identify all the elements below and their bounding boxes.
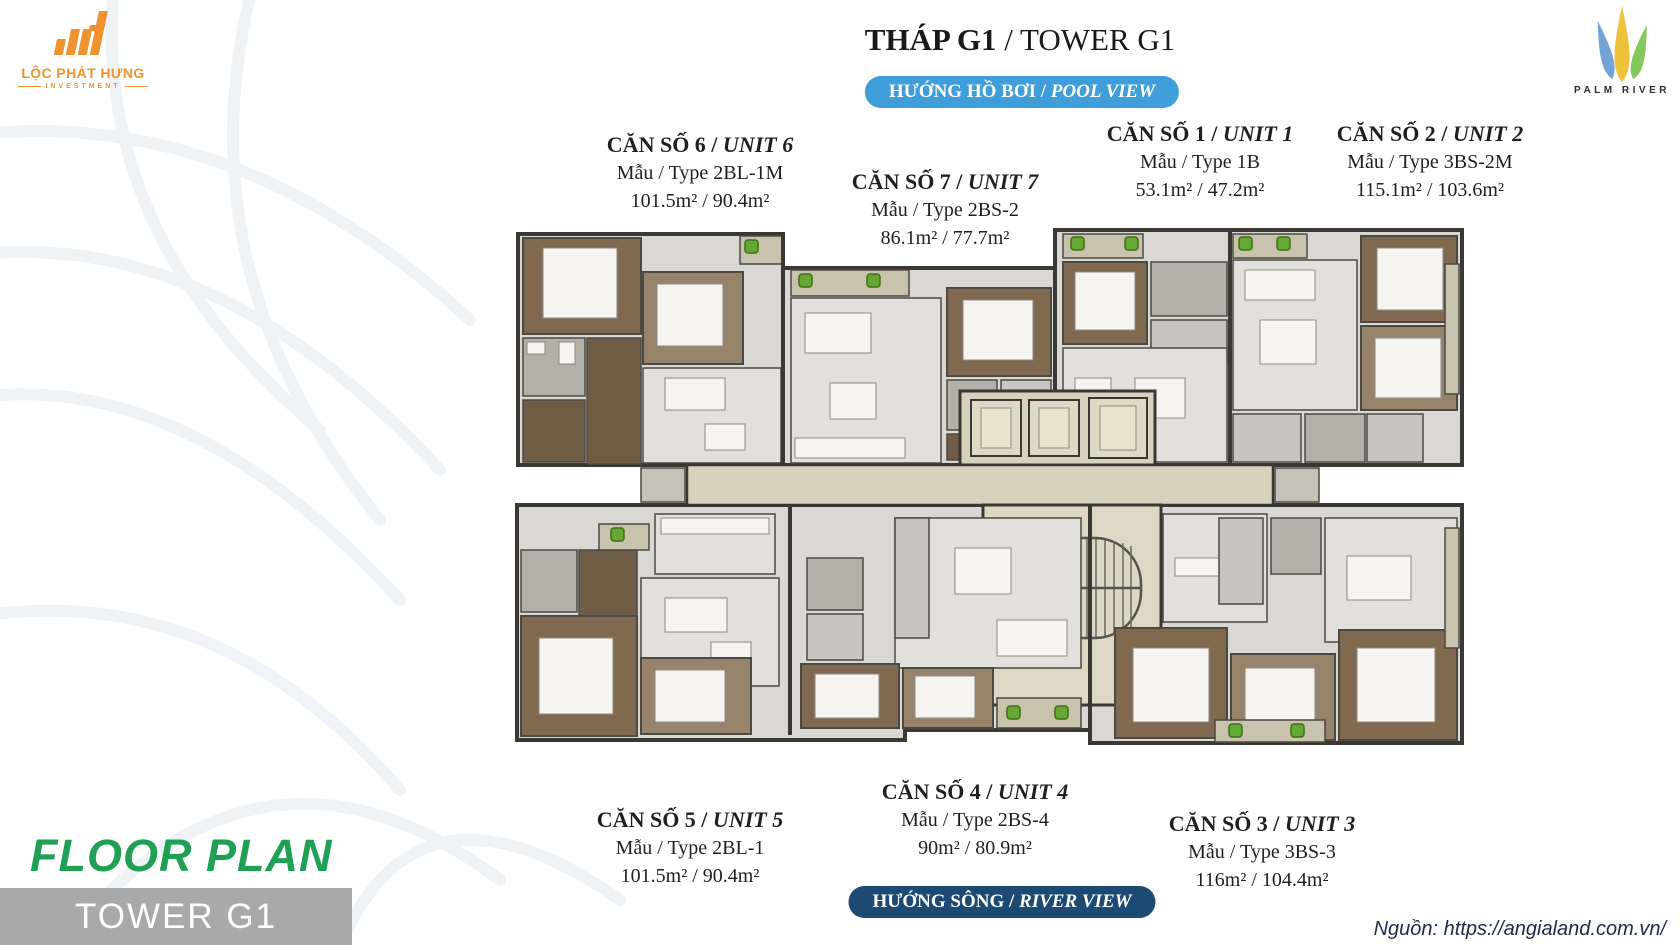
developer-name: LỘC PHÁT HƯNG (18, 65, 148, 81)
developer-subtitle: INVESTMENT (18, 83, 148, 90)
floor-plan-heading: FLOOR PLAN (30, 830, 332, 882)
unit-1-label: CĂN SỐ 1 / UNIT 1 Mẫu / Type 1B 53.1m² /… (1107, 120, 1293, 204)
unit-5-label: CĂN SỐ 5 / UNIT 5 Mẫu / Type 2BL-1 101.5… (597, 806, 783, 890)
corridor (687, 465, 1273, 505)
pool-view-badge: HƯỚNG HỒ BƠI / POOL VIEW (865, 76, 1179, 108)
developer-logo: LỘC PHÁT HƯNG INVESTMENT (18, 8, 148, 90)
dash-line (18, 86, 41, 87)
dash-line (125, 86, 148, 87)
ac-ledge-right (1275, 468, 1319, 502)
source-credit: Nguồn: https://angialand.com.vn/ (1374, 918, 1666, 941)
unit-4-label: CĂN SỐ 4 / UNIT 4 Mẫu / Type 2BS-4 90m² … (882, 778, 1068, 862)
river-view-badge: HƯỚNG SÔNG / RIVER VIEW (848, 886, 1155, 918)
floor-plan-graphic (515, 228, 1465, 753)
ac-ledge-left (641, 468, 685, 502)
project-name: PALM RIVER (1568, 85, 1676, 96)
unit-2-label: CĂN SỐ 2 / UNIT 2 Mẫu / Type 3BS-2M 115.… (1337, 120, 1523, 204)
page-title: THÁP G1 / TOWER G1 (865, 22, 1176, 58)
title-en: TOWER G1 (1020, 22, 1175, 57)
palm-leaves-icon (1585, 4, 1659, 84)
elevator-core (960, 391, 1155, 465)
project-logo: PALM RIVER (1568, 4, 1676, 96)
tower-name-bar: TOWER G1 (0, 888, 352, 945)
title-vi: THÁP G1 (865, 22, 997, 57)
floor-plan-page: { "sep": " / ", "header": { "title_vi": … (0, 0, 1680, 945)
tower-name: TOWER G1 (75, 897, 277, 937)
developer-logo-icon (51, 8, 115, 58)
unit-6-label: CĂN SỐ 6 / UNIT 6 Mẫu / Type 2BL-1M 101.… (607, 131, 793, 215)
unit-3-label: CĂN SỐ 3 / UNIT 3 Mẫu / Type 3BS-3 116m²… (1169, 810, 1355, 894)
unit-7-label: CĂN SỐ 7 / UNIT 7 Mẫu / Type 2BS-2 86.1m… (852, 168, 1038, 252)
